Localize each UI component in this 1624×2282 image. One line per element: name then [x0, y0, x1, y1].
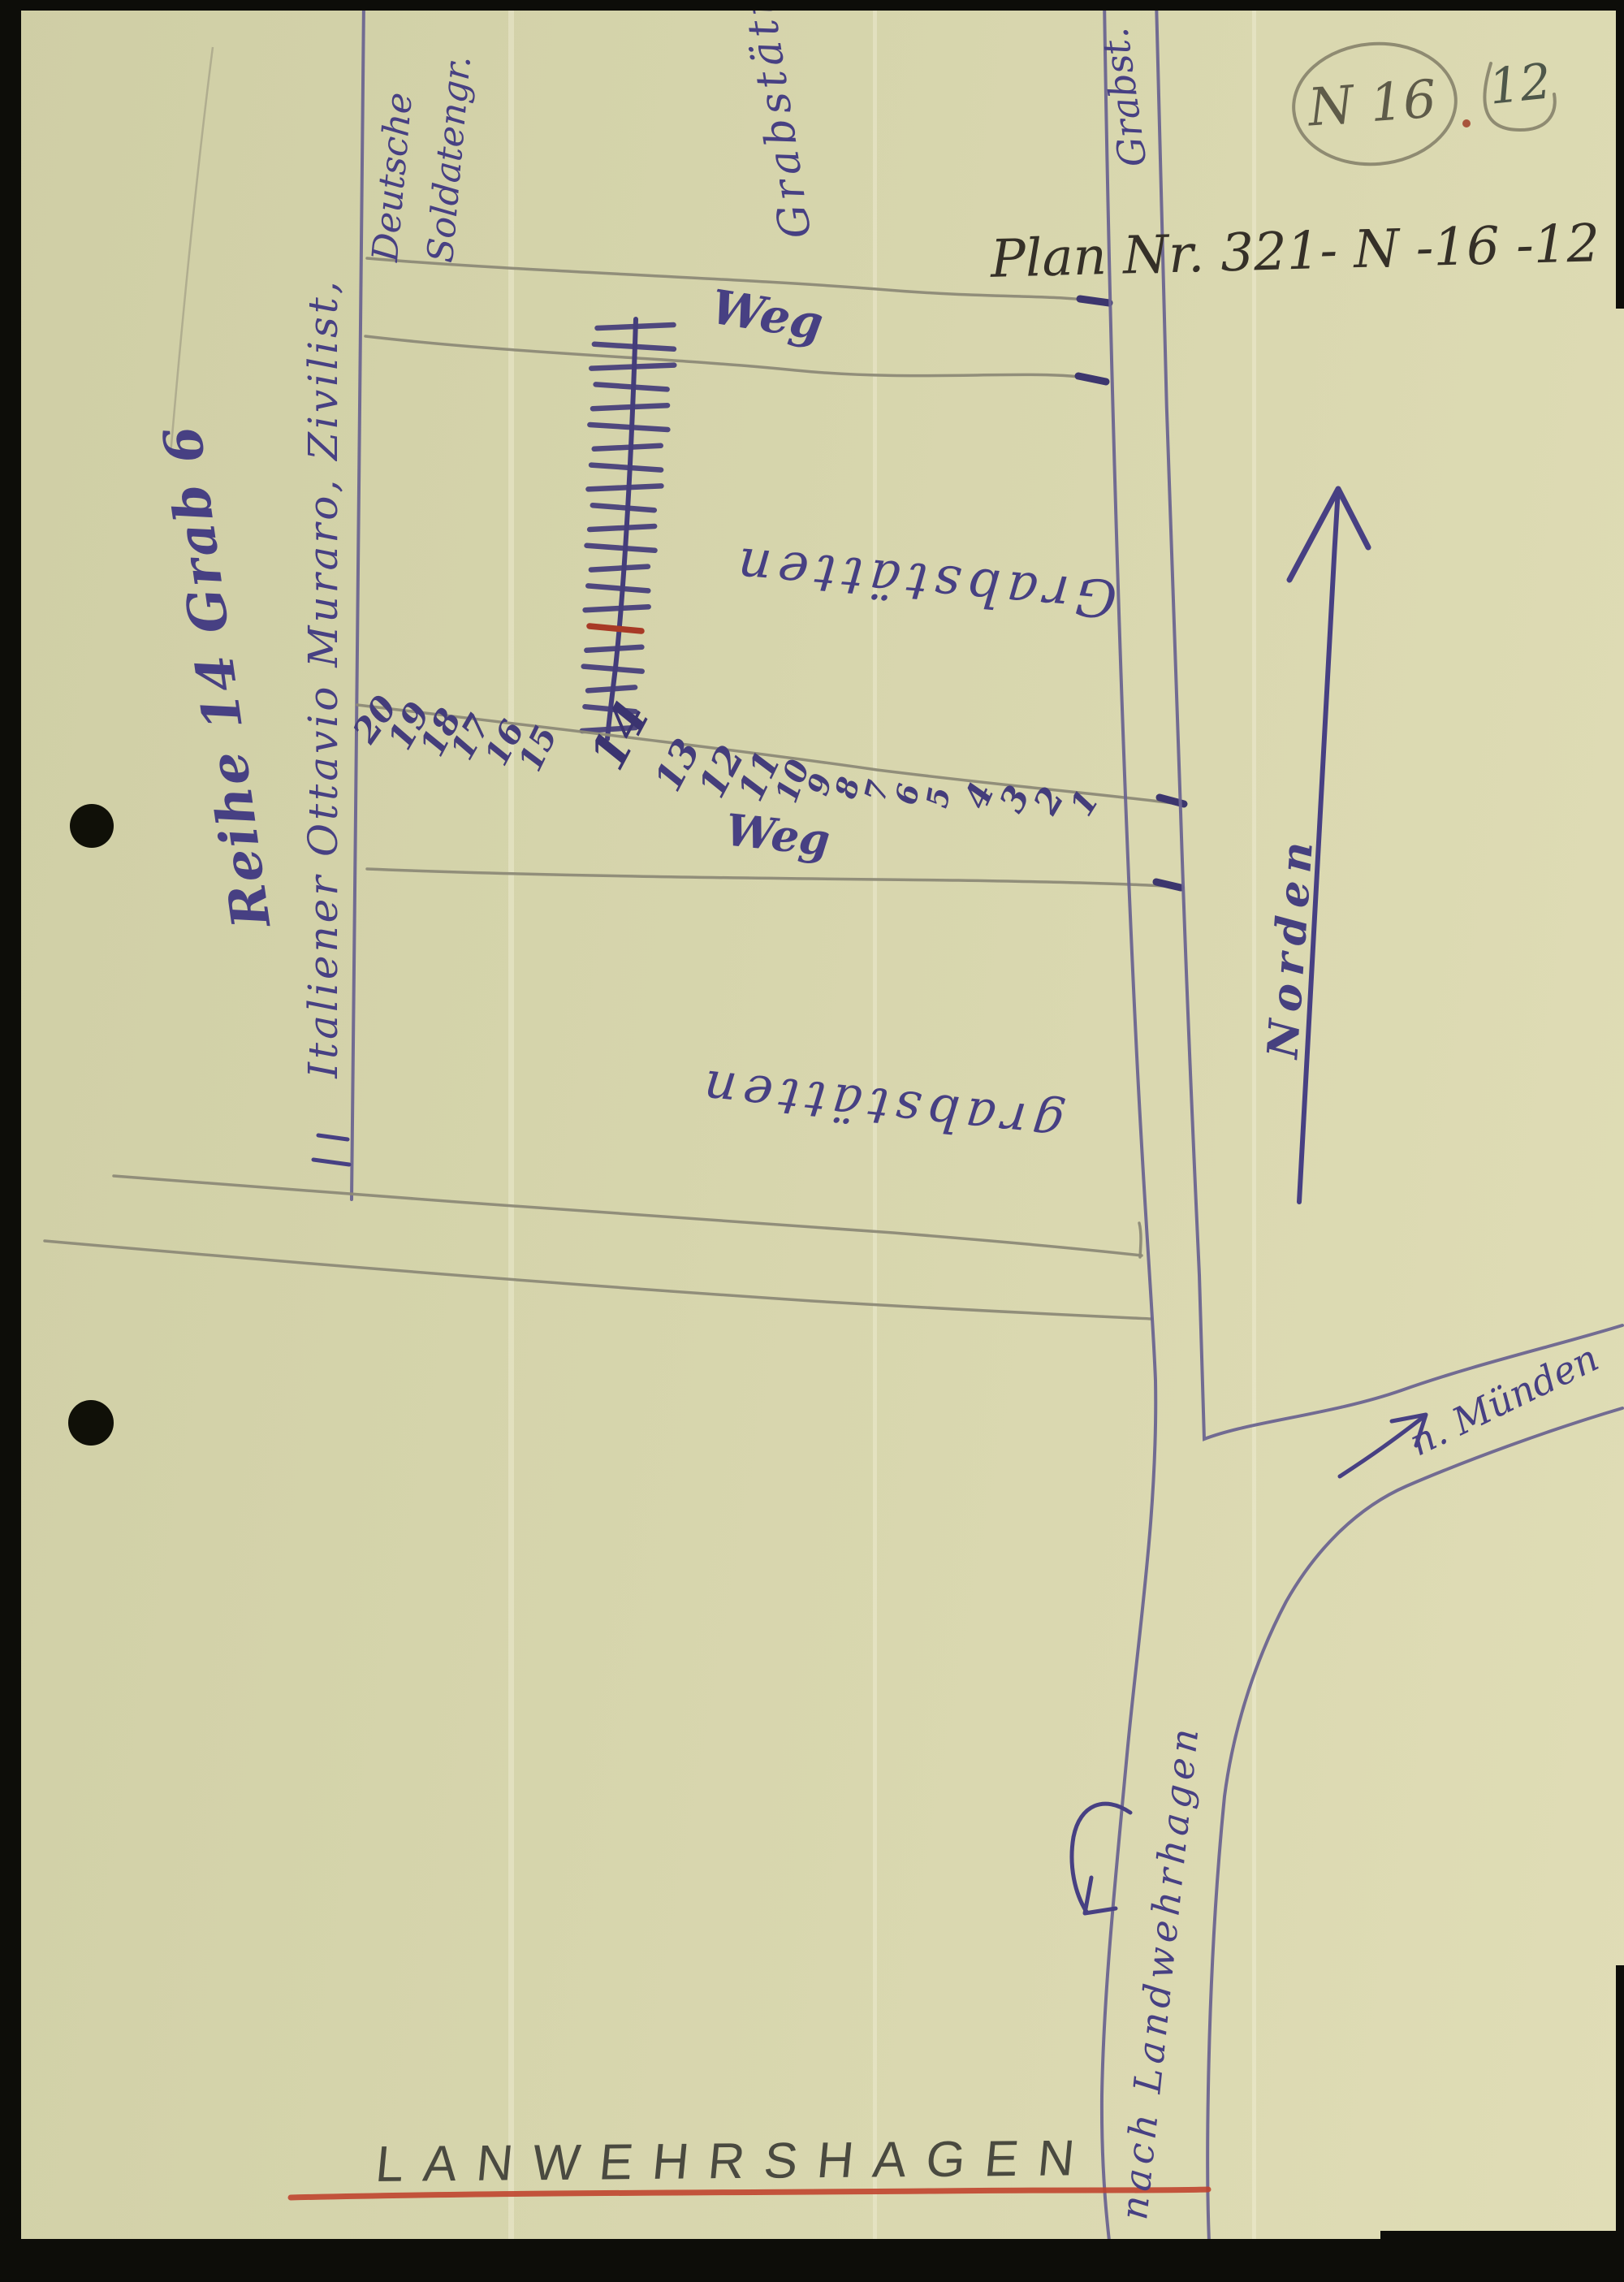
italiener-muraro-note: Italiener Ottavio Muraro, Zivilist,	[303, 278, 343, 1078]
field-bottom-line-upper	[114, 1176, 1142, 1256]
grave-tick	[591, 465, 661, 470]
punch-hole	[70, 804, 114, 848]
circled-plan-code: N 16	[1307, 74, 1438, 135]
grave-tick	[591, 567, 648, 570]
north-arrowhead	[1289, 489, 1368, 580]
page-number: 12	[1487, 57, 1553, 112]
grave-tick	[587, 546, 655, 551]
upper-weg-bottom-line	[365, 336, 1101, 380]
grave-tick	[596, 384, 667, 389]
grave-tick	[585, 607, 649, 610]
scan-border-right-bottom	[1616, 1965, 1624, 2282]
grave-ladder	[582, 325, 674, 731]
grave-tick	[588, 486, 661, 489]
grave-tick	[588, 586, 648, 590]
grave-tick	[594, 344, 674, 349]
grave-tick	[598, 325, 674, 328]
grave-tick	[594, 446, 661, 449]
grave-tick	[586, 647, 641, 650]
lower-weg-bottom-line	[367, 869, 1176, 887]
caption-lanwehrshagen: LANWEHRSHAGEN	[374, 2133, 1096, 2190]
field-bottom-line-lower	[45, 1241, 1151, 1319]
scan-border-bottom-right	[1380, 2231, 1624, 2282]
grave-tick	[593, 405, 667, 408]
grave-tick	[584, 667, 642, 672]
field-boundary-line	[352, 2, 364, 1199]
scan-border-left	[0, 0, 21, 2282]
dot-mark	[1462, 119, 1471, 127]
scanned-plan-page: Plan Nr. 321- N -16 -12 N 16 12 Grabst. …	[0, 0, 1624, 2282]
scan-border-right-top	[1616, 0, 1624, 309]
punch-hole	[68, 1400, 114, 1446]
plan-number: Plan Nr. 321- N -16 -12	[990, 218, 1600, 286]
red-grave-tick	[590, 626, 641, 631]
road-landwehr-right-line	[1207, 1408, 1622, 2282]
grave-tick	[590, 425, 667, 430]
line-end-tick	[1078, 376, 1106, 382]
boundary-end-ticks	[313, 1135, 349, 1165]
grave-tick	[588, 687, 635, 690]
landwehr-arrowhead	[1085, 1878, 1116, 1913]
grave-tick	[591, 365, 674, 369]
field-bottom-line-stub	[1139, 1223, 1141, 1257]
weg-label-bottom: Weg	[723, 807, 831, 862]
paper-edge-line	[171, 47, 213, 455]
grave-tick	[593, 505, 654, 510]
scan-border-top	[0, 0, 1624, 11]
line-end-tick	[1080, 299, 1109, 303]
grave-tick	[590, 526, 654, 529]
